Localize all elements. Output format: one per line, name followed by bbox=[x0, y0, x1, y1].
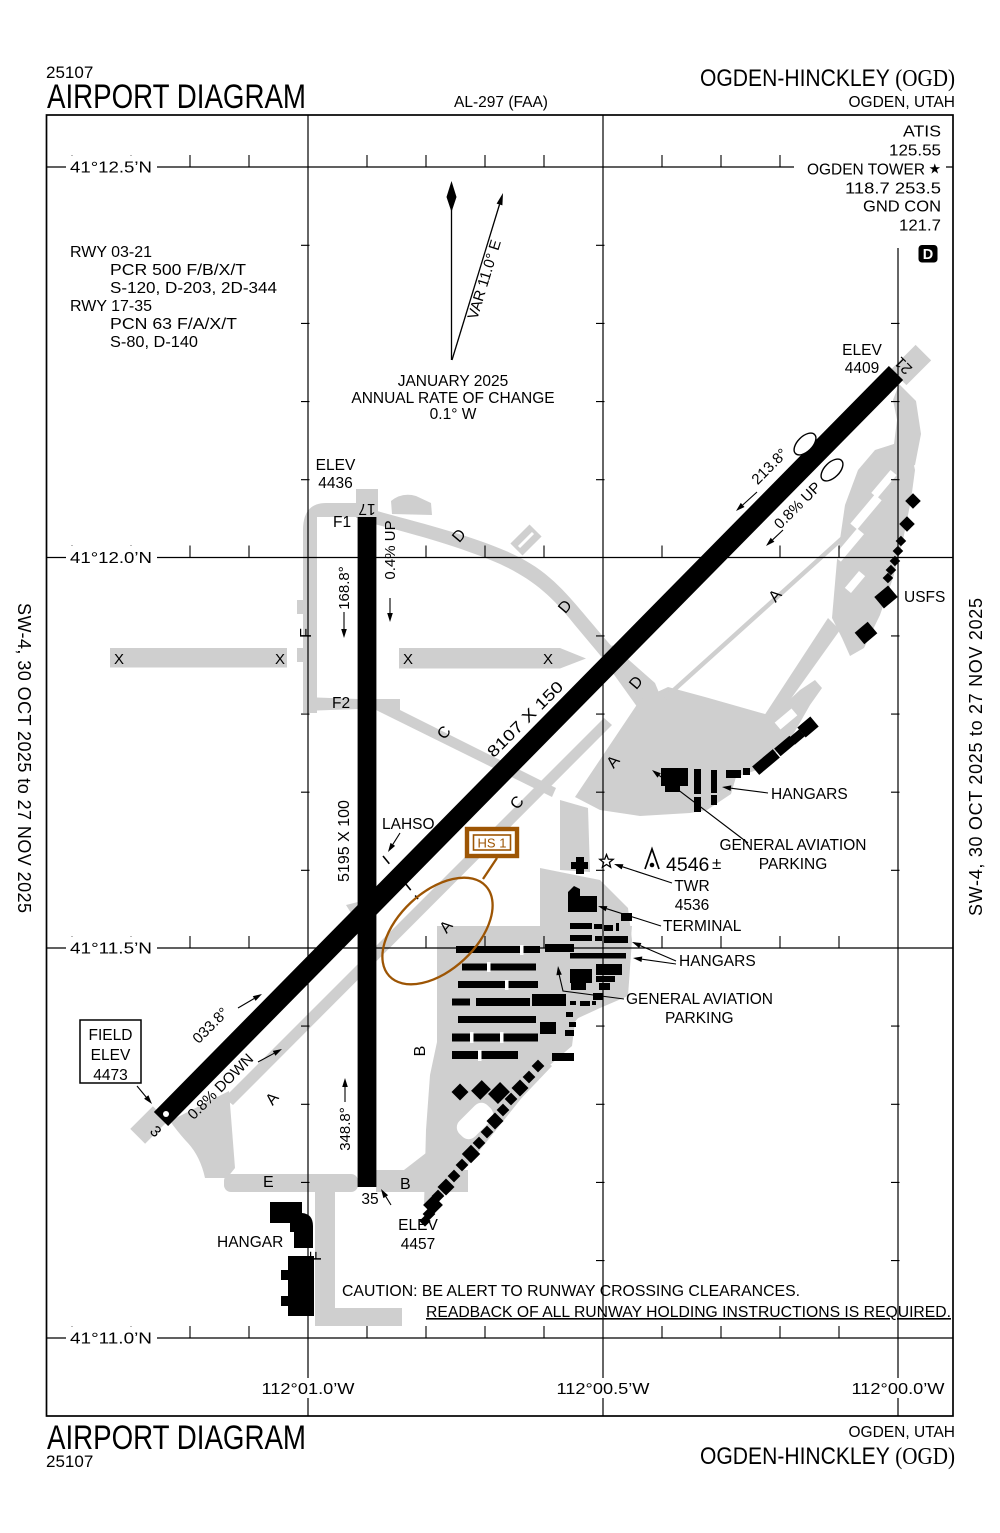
svg-text:348.8°: 348.8° bbox=[337, 1107, 354, 1151]
svg-text:F: F bbox=[308, 1251, 325, 1261]
svg-text:4546: 4546 bbox=[666, 854, 709, 876]
svg-text:LAHSO: LAHSO bbox=[382, 816, 435, 833]
svg-text:112°01.0’W: 112°01.0’W bbox=[262, 1381, 356, 1398]
svg-text:X: X bbox=[543, 651, 553, 668]
svg-text:GENERAL AVIATION: GENERAL AVIATION bbox=[626, 991, 773, 1008]
svg-text:SW-4, 30 OCT 2025 to 27 NOV: SW-4, 30 OCT 2025 to 27 NOV 2025 bbox=[14, 603, 34, 913]
svg-text:OGDEN-HINCKLEY (OGD): OGDEN-HINCKLEY (OGD) bbox=[700, 1443, 955, 1470]
svg-text:4409: 4409 bbox=[845, 360, 879, 377]
svg-text:OGDEN, UTAH: OGDEN, UTAH bbox=[849, 94, 956, 111]
svg-text:RWY 03-21: RWY 03-21 bbox=[70, 244, 152, 261]
svg-text:F: F bbox=[298, 628, 315, 638]
svg-text:4457: 4457 bbox=[401, 1236, 435, 1253]
svg-text:X: X bbox=[275, 651, 285, 668]
svg-text:CAUTION: BE ALERT TO RUNWAY CR: CAUTION: BE ALERT TO RUNWAY CROSSING CLE… bbox=[342, 1283, 800, 1300]
svg-text:ANNUAL RATE OF CHANGE: ANNUAL RATE OF CHANGE bbox=[351, 390, 554, 407]
svg-text:HANGAR: HANGAR bbox=[217, 1234, 283, 1251]
svg-text:4436: 4436 bbox=[318, 475, 352, 492]
svg-text:ELEV: ELEV bbox=[842, 342, 882, 359]
svg-text:RWY 17-35: RWY 17-35 bbox=[70, 298, 152, 315]
svg-text:4473: 4473 bbox=[93, 1067, 127, 1084]
svg-text:AL-297 (FAA): AL-297 (FAA) bbox=[454, 94, 548, 111]
svg-text:B: B bbox=[412, 1046, 429, 1057]
svg-text:PCR 500 F/B/X/T: PCR 500 F/B/X/T bbox=[110, 262, 247, 279]
svg-text:READBACK OF ALL RUNWAY HOLDING: READBACK OF ALL RUNWAY HOLDING INSTRUCTI… bbox=[426, 1304, 951, 1321]
svg-text:HS 1: HS 1 bbox=[478, 836, 507, 851]
svg-text:121.7: 121.7 bbox=[899, 218, 941, 235]
svg-text:USFS: USFS bbox=[904, 589, 945, 606]
svg-text:ELEV: ELEV bbox=[316, 457, 356, 474]
svg-text:SW-4, 30 OCT 2025 to 27 NOV: SW-4, 30 OCT 2025 to 27 NOV 2025 bbox=[966, 598, 986, 916]
svg-text:112°00.5’W: 112°00.5’W bbox=[557, 1381, 651, 1398]
svg-text:0.4% UP: 0.4% UP bbox=[382, 520, 399, 579]
svg-text:4536: 4536 bbox=[675, 897, 709, 914]
svg-text:41°11.5’N: 41°11.5’N bbox=[70, 941, 152, 958]
svg-text:112°00.0’W: 112°00.0’W bbox=[852, 1381, 946, 1398]
svg-text:HANGARS: HANGARS bbox=[771, 786, 848, 803]
svg-text:OGDEN, UTAH: OGDEN, UTAH bbox=[849, 1424, 956, 1441]
svg-text:X: X bbox=[114, 651, 124, 668]
svg-text:JANUARY 2025: JANUARY 2025 bbox=[398, 373, 509, 390]
svg-text:41°11.0’N: 41°11.0’N bbox=[70, 1331, 152, 1348]
svg-text:GND CON: GND CON bbox=[863, 199, 941, 216]
svg-text:FIELD: FIELD bbox=[89, 1027, 133, 1044]
svg-text:ATIS: ATIS bbox=[903, 124, 941, 141]
svg-text:41°12.0’N: 41°12.0’N bbox=[70, 550, 152, 567]
svg-text:F2: F2 bbox=[332, 695, 350, 712]
svg-text:35: 35 bbox=[361, 1191, 378, 1208]
svg-text:S-120, D-203, 2D-344: S-120, D-203, 2D-344 bbox=[110, 280, 277, 297]
svg-text:ELEV: ELEV bbox=[91, 1047, 131, 1064]
svg-text:125.55: 125.55 bbox=[889, 143, 941, 160]
svg-text:OGDEN-HINCKLEY (OGD): OGDEN-HINCKLEY (OGD) bbox=[700, 65, 955, 92]
svg-text:TWR: TWR bbox=[674, 878, 709, 895]
svg-text:168.8°: 168.8° bbox=[336, 566, 353, 610]
svg-text:25107: 25107 bbox=[46, 1452, 93, 1471]
svg-text:5195 X 100: 5195 X 100 bbox=[336, 800, 353, 882]
svg-text:PARKING: PARKING bbox=[759, 856, 828, 873]
svg-text:E: E bbox=[263, 1174, 274, 1191]
svg-text:0.1° W: 0.1° W bbox=[430, 406, 477, 423]
svg-text:±: ± bbox=[712, 854, 721, 873]
svg-text:PCN 63 F/A/X/T: PCN 63 F/A/X/T bbox=[110, 316, 238, 333]
svg-text:★: ★ bbox=[928, 161, 941, 177]
svg-text:ELEV: ELEV bbox=[398, 1217, 438, 1234]
svg-text:OGDEN TOWER: OGDEN TOWER bbox=[807, 162, 925, 179]
svg-text:GENERAL AVIATION: GENERAL AVIATION bbox=[719, 837, 866, 854]
svg-text:HANGARS: HANGARS bbox=[679, 953, 756, 970]
svg-text:PARKING: PARKING bbox=[665, 1010, 734, 1027]
svg-text:S-80, D-140: S-80, D-140 bbox=[110, 334, 198, 351]
svg-text:41°12.5’N: 41°12.5’N bbox=[70, 160, 152, 177]
svg-text:17: 17 bbox=[358, 500, 375, 517]
svg-text:F1: F1 bbox=[333, 514, 351, 531]
svg-text:AIRPORT DIAGRAM: AIRPORT DIAGRAM bbox=[47, 78, 306, 116]
svg-text:118.7 253.5: 118.7 253.5 bbox=[845, 181, 941, 198]
svg-text:D: D bbox=[923, 247, 933, 263]
svg-text:X: X bbox=[403, 651, 413, 668]
svg-text:B: B bbox=[400, 1176, 411, 1193]
svg-text:TERMINAL: TERMINAL bbox=[663, 918, 742, 935]
